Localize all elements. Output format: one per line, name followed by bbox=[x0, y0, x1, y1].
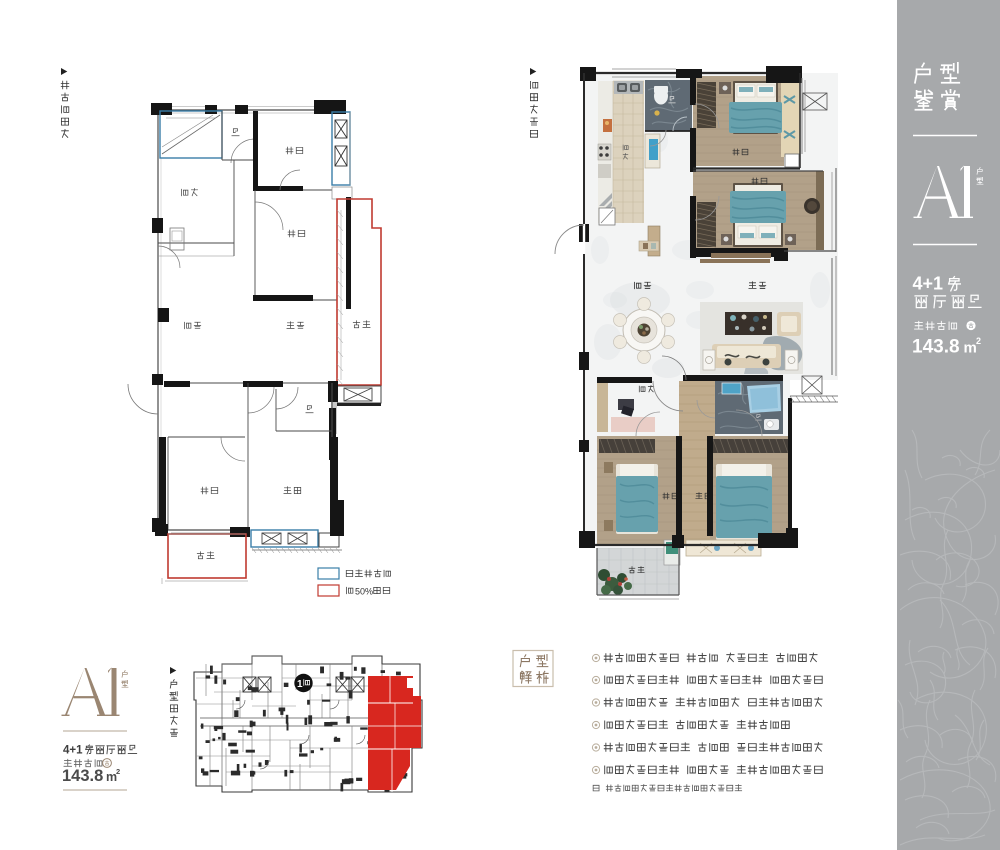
svg-text:2: 2 bbox=[976, 336, 981, 346]
svg-text:50%: 50% bbox=[355, 587, 373, 597]
svg-text:2: 2 bbox=[116, 767, 120, 776]
svg-text:4+1: 4+1 bbox=[913, 274, 944, 294]
svg-text:143.8: 143.8 bbox=[912, 337, 960, 358]
svg-text:m: m bbox=[964, 340, 977, 357]
svg-text:4+1: 4+1 bbox=[63, 745, 83, 757]
svg-text:1: 1 bbox=[297, 679, 303, 690]
svg-text:143.8: 143.8 bbox=[62, 767, 103, 785]
